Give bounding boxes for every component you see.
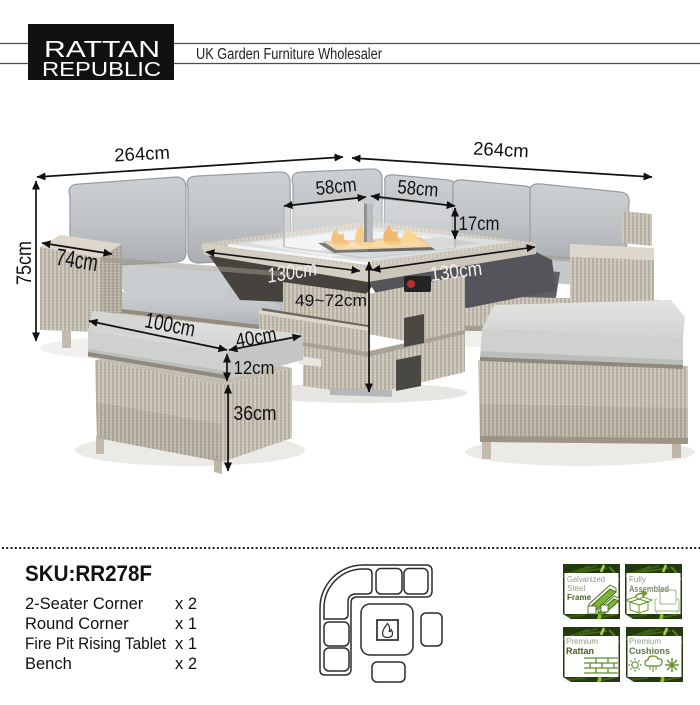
svg-text:x 2: x 2: [175, 595, 197, 613]
svg-text:36cm: 36cm: [234, 403, 277, 425]
svg-text:x 1: x 1: [175, 635, 197, 653]
svg-text:Premium: Premium: [566, 637, 598, 646]
svg-text:Frame: Frame: [567, 593, 592, 602]
svg-text:Cushions: Cushions: [629, 646, 670, 656]
svg-text:Rattan: Rattan: [566, 646, 594, 656]
svg-text:Steel: Steel: [567, 584, 585, 593]
svg-text:Fire Pit Rising Tablet: Fire Pit Rising Tablet: [25, 635, 166, 653]
svg-text:2-Seater Corner: 2-Seater Corner: [25, 595, 144, 613]
svg-text:49~72cm: 49~72cm: [295, 291, 367, 310]
svg-text:264cm: 264cm: [114, 142, 171, 166]
svg-text:UK Garden Furniture Wholesaler: UK Garden Furniture Wholesaler: [196, 46, 382, 63]
svg-text:Premium: Premium: [629, 637, 661, 646]
svg-text:58cm: 58cm: [397, 176, 440, 201]
svg-text:12cm: 12cm: [234, 358, 275, 378]
svg-text:REPUBLIC: REPUBLIC: [42, 59, 161, 81]
svg-text:Galvanized: Galvanized: [567, 575, 605, 584]
svg-text:75cm: 75cm: [13, 241, 36, 285]
svg-text:17cm: 17cm: [459, 213, 500, 235]
svg-text:264cm: 264cm: [473, 138, 530, 162]
svg-text:x 1: x 1: [175, 615, 197, 633]
svg-text:58cm: 58cm: [315, 174, 358, 200]
svg-text:Bench: Bench: [25, 655, 72, 673]
svg-text:Assembled: Assembled: [629, 584, 669, 594]
svg-text:x 2: x 2: [175, 655, 197, 673]
svg-text:Fully: Fully: [629, 575, 646, 584]
svg-text:Round Corner: Round Corner: [25, 615, 129, 633]
svg-text:SKU:RR278F: SKU:RR278F: [25, 561, 152, 586]
